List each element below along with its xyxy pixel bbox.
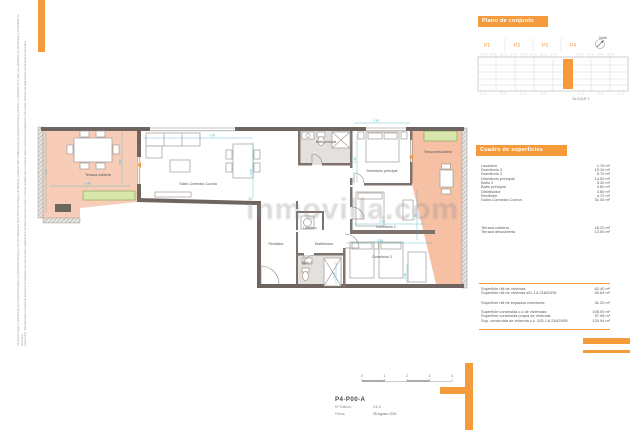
- scale-tick-3: 3: [429, 374, 431, 378]
- surface-row: Terraza descubierta13.00 m²: [481, 230, 610, 234]
- surfaces-totals: Superficie útil de vivienda:82.40 m² Sup…: [481, 287, 610, 328]
- total-row: Superficie útil de espacios exteriores:3…: [481, 301, 610, 305]
- room-label-terraza-descubierta: Terraza descubierta: [424, 150, 452, 154]
- unit-label-p3: P3: [542, 43, 548, 49]
- total-row: Sup. construida de vivienda c.c. S/D.J.A…: [481, 319, 610, 323]
- surface-row-label: Terraza descubierta: [481, 230, 515, 234]
- dim-2-66: 2.66: [353, 157, 357, 163]
- totals-rule-top: [479, 283, 610, 284]
- dim-3-95-dorm3: 3.95: [377, 239, 383, 243]
- graphic-scale-bar: 0 1 2 3 4: [358, 371, 458, 385]
- corner-accent-bar-bottom-right-vertical: [465, 363, 473, 430]
- unit-label-p4: P4: [570, 43, 576, 49]
- room-label-salon: Salón-Comedor-Cocina: [179, 182, 217, 186]
- corner-accent-bar-top-left: [38, 0, 45, 52]
- dim-3-95-dorm2: 3.95: [379, 220, 385, 224]
- dim-7-36: 7.36: [413, 214, 417, 220]
- surfaces-panel-header: Cuadro de superficies: [476, 145, 567, 156]
- room-label-lavadero: Lavadero: [303, 226, 317, 230]
- surface-row: Salón-Comedor-Cocina31.40 m²: [481, 198, 610, 202]
- totals-rule-bottom: [479, 329, 610, 330]
- scale-tick-0: 0: [361, 374, 363, 378]
- edition-label: Nº Edición:: [335, 405, 352, 409]
- unit-label-p1: P1: [484, 43, 490, 49]
- dim-2-95: 2.95: [403, 273, 407, 279]
- total-row: Superficie útil de vivienda s/D.J.A 218/…: [481, 291, 610, 295]
- block-label: BLOQUE 1: [573, 97, 590, 101]
- unit-labels: P1 P2 P3 P4: [484, 43, 576, 49]
- surface-row-value: 13.00 m²: [595, 230, 610, 234]
- unit-label-p2: P2: [514, 43, 520, 49]
- dim-3-95-salon: 3.95: [249, 169, 253, 175]
- surface-row-label: Salón-Comedor-Cocina: [481, 198, 522, 202]
- room-label-terraza-cubierta: Terraza cubierta: [85, 173, 111, 177]
- total-row-label: Sup. construida de vivienda c.c. S/D.J.A…: [481, 319, 568, 323]
- room-label-dormitorio-principal: Dormitorio principal: [367, 169, 398, 173]
- sheet-code: P4-P00-A: [335, 396, 365, 403]
- corner-accent-bar-bottom-right-horizontal: [440, 387, 468, 394]
- total-row-label: Superficie útil de espacios exteriores:: [481, 301, 545, 305]
- north-compass-icon: Norte: [596, 36, 608, 49]
- room-label-bano-principal: Baño principal: [316, 140, 336, 144]
- scale-tick-1: 1: [384, 374, 386, 378]
- site-panel-header: Plano de conjunto: [478, 16, 548, 27]
- room-label-distribuidor: Distribuidor: [315, 242, 334, 246]
- room-label-bano-2: Baño 2: [302, 261, 312, 265]
- edition-value: V.1.0: [373, 405, 381, 409]
- room-label-recibidor: Recibidor: [268, 242, 284, 246]
- date-value: 05 Agosto 2024: [373, 412, 397, 416]
- scale-tick-2: 2: [406, 374, 408, 378]
- room-label-dormitorio-3: Dormitorio 3: [372, 255, 392, 259]
- totals-group-useful: Superficie útil de vivienda:82.40 m² Sup…: [481, 287, 610, 296]
- total-row-label: Superficie útil de vivienda s/D.J.A 218/…: [481, 291, 557, 295]
- total-row-value: 90.64 m²: [595, 291, 610, 295]
- date-label: Fecha:: [335, 412, 345, 416]
- total-row-value: 31.20 m²: [595, 301, 610, 305]
- dim-7-95: 7.95: [209, 134, 215, 138]
- scale-tick-4: 4: [451, 374, 453, 378]
- dim-1-46: 1.46: [332, 272, 336, 278]
- building-block-detail: [478, 54, 628, 94]
- total-row-value: 120.94 m²: [592, 319, 610, 323]
- highlighted-unit-p4: [563, 59, 573, 89]
- surface-row-value: 31.40 m²: [595, 198, 610, 202]
- dim-3-80: 3.80: [118, 159, 122, 165]
- surfaces-terrace-list: Terraza cubierta18.20 m² Terraza descubi…: [481, 226, 610, 235]
- accent-stripe-upper: [583, 338, 630, 344]
- totals-group-exterior: Superficie útil de espacios exteriores:3…: [481, 301, 610, 305]
- dim-3-28: 3.28: [373, 119, 379, 123]
- floor-plan-sheet: { "site_panel": { "title": "Plano de con…: [0, 0, 630, 430]
- room-label-dormitorio-2: Dormitorio 2: [376, 225, 396, 229]
- dim-4-45: 4.45: [85, 182, 91, 186]
- floor-plan-drawing: 4.00 4.45 3.80 7.95 3.95 3.28 2.66 3.95 …: [10, 112, 480, 302]
- accent-stripe-lower: [583, 350, 630, 353]
- site-plan-schematic: Norte P1 P2 P3 P4 BLOQUE 1: [470, 30, 630, 105]
- totals-group-built: Superficie construida c.c de viviendas:1…: [481, 310, 610, 323]
- dim-4-00: 4.00: [44, 169, 48, 175]
- surfaces-room-list: Lavadero1.10 m² Dormitorio 310.10 m² Dor…: [481, 164, 610, 203]
